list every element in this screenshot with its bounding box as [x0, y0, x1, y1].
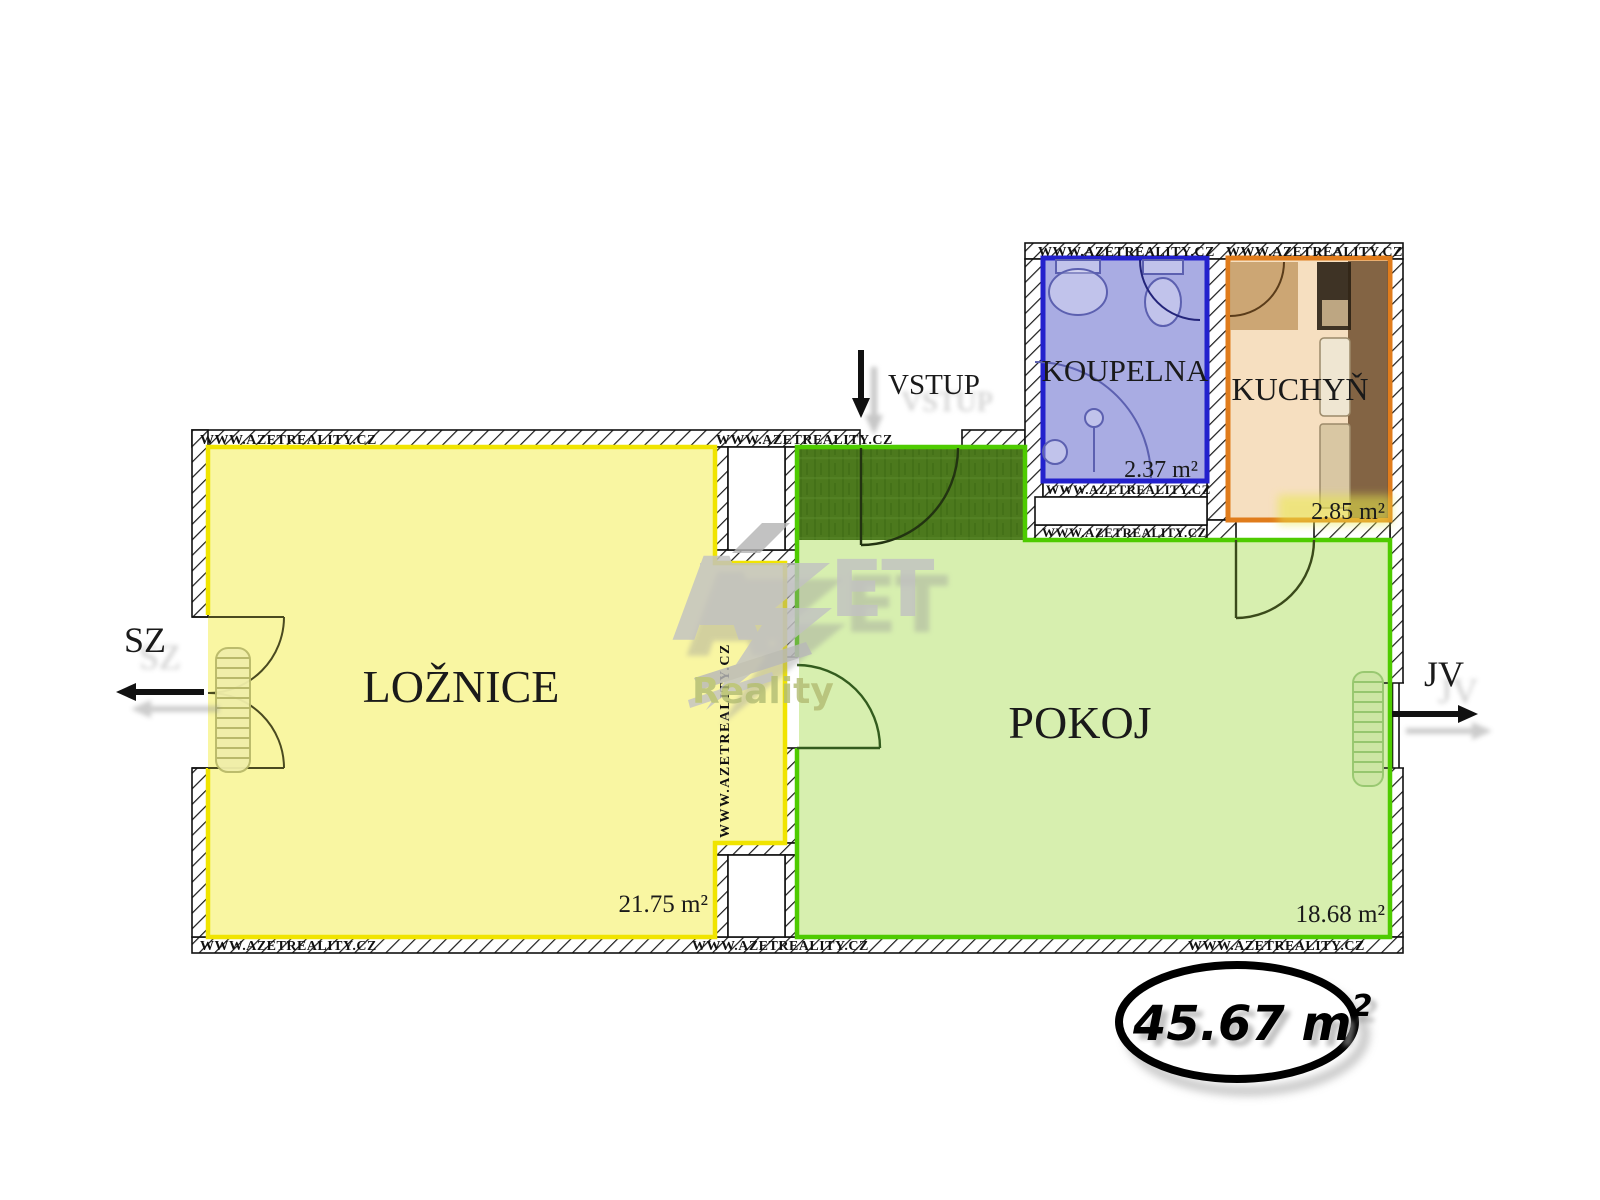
- total-area-label: 45.67 m2: [1132, 989, 1372, 1052]
- wall-url-text: WWW.AZETREALITY.CZ: [1226, 245, 1403, 260]
- drain-icon: [1043, 440, 1067, 464]
- wall-segment: [1207, 520, 1236, 540]
- wall-url-text: WWW.AZETREALITY.CZ: [200, 939, 377, 954]
- wall-url-text: WWW.AZETREALITY.CZ: [692, 939, 869, 954]
- compass-nw: SZ SZ: [116, 620, 219, 718]
- utility-niche: [1035, 497, 1207, 525]
- wall-segment-midstrip: [716, 855, 728, 937]
- room-pokoj-entry-fill: [799, 447, 1025, 540]
- radiator-pokoj: [1353, 672, 1383, 786]
- floorplan-svg: WWW.AZETREALITY.CZ WWW.AZETREALITY.CZ WW…: [0, 0, 1600, 1200]
- total-area-stamp: 45.67 m2 45.67 m2: [1119, 965, 1378, 1091]
- radiator-body: [216, 648, 250, 772]
- wall-url-text: WWW.AZETREALITY.CZ: [1188, 939, 1365, 954]
- compass-se-arrowhead-shadow: [1472, 722, 1492, 740]
- compass-nw-arrowhead-icon: [116, 683, 136, 701]
- label-kuchyn: KUCHYŇ: [1232, 371, 1369, 407]
- area-kuchyn: 2.85 m²: [1311, 499, 1385, 525]
- radiator-bedroom: [216, 648, 250, 772]
- compass-nw-arrowhead-shadow: [131, 700, 151, 718]
- total-area-base: 45.67 m: [1132, 996, 1352, 1052]
- floorplan-canvas: WWW.AZETREALITY.CZ WWW.AZETREALITY.CZ WW…: [0, 0, 1600, 1200]
- compass-se: JV JV: [1392, 654, 1492, 740]
- compass-se-label: JV: [1424, 654, 1464, 694]
- brand-reality: Reality: [692, 671, 834, 712]
- wall-url-text: WWW.AZETREALITY.CZ: [1038, 245, 1215, 260]
- wall-url-text: WWW.AZETREALITY.CZ: [1046, 482, 1211, 497]
- shaft-bottom: [728, 855, 785, 937]
- wall-segment: [962, 430, 1025, 447]
- wall-url-text: WWW.AZETREALITY.CZ: [716, 433, 893, 448]
- compass-nw-label: SZ: [124, 620, 166, 660]
- wall-segment-left: [192, 768, 208, 937]
- total-area-sup: 2: [1352, 989, 1373, 1024]
- wall-segment-bath-kitchen: [1207, 259, 1228, 520]
- wall-segment-left: [192, 430, 208, 617]
- wall-url-text: WWW.AZETREALITY.CZ: [200, 433, 377, 448]
- entrance-arrowhead-shadow: [865, 415, 883, 435]
- radiator-body: [1353, 672, 1383, 786]
- sink-icon: [1049, 269, 1107, 315]
- label-pokoj: POKOJ: [1008, 697, 1151, 748]
- shower-head-icon: [1085, 409, 1103, 427]
- entrance-label: VSTUP: [888, 369, 980, 401]
- toilet-tank: [1143, 260, 1183, 274]
- wall-url-text: WWW.AZETREALITY.CZ: [1042, 525, 1207, 540]
- area-koupelna: 2.37 m²: [1124, 457, 1198, 483]
- brand-et: ET: [830, 545, 934, 635]
- area-pokoj: 18.68 m²: [1296, 901, 1385, 928]
- label-koupelna: KOUPELNA: [1041, 353, 1209, 388]
- label-loznice: LOŽNICE: [363, 661, 560, 712]
- toilet-icon: [1145, 278, 1181, 326]
- appliance-icon: [1322, 300, 1348, 326]
- area-loznice: 21.75 m²: [619, 891, 708, 918]
- entrance-marker: VSTUP VSTUP: [852, 350, 993, 435]
- kitchen-table: [1230, 262, 1298, 330]
